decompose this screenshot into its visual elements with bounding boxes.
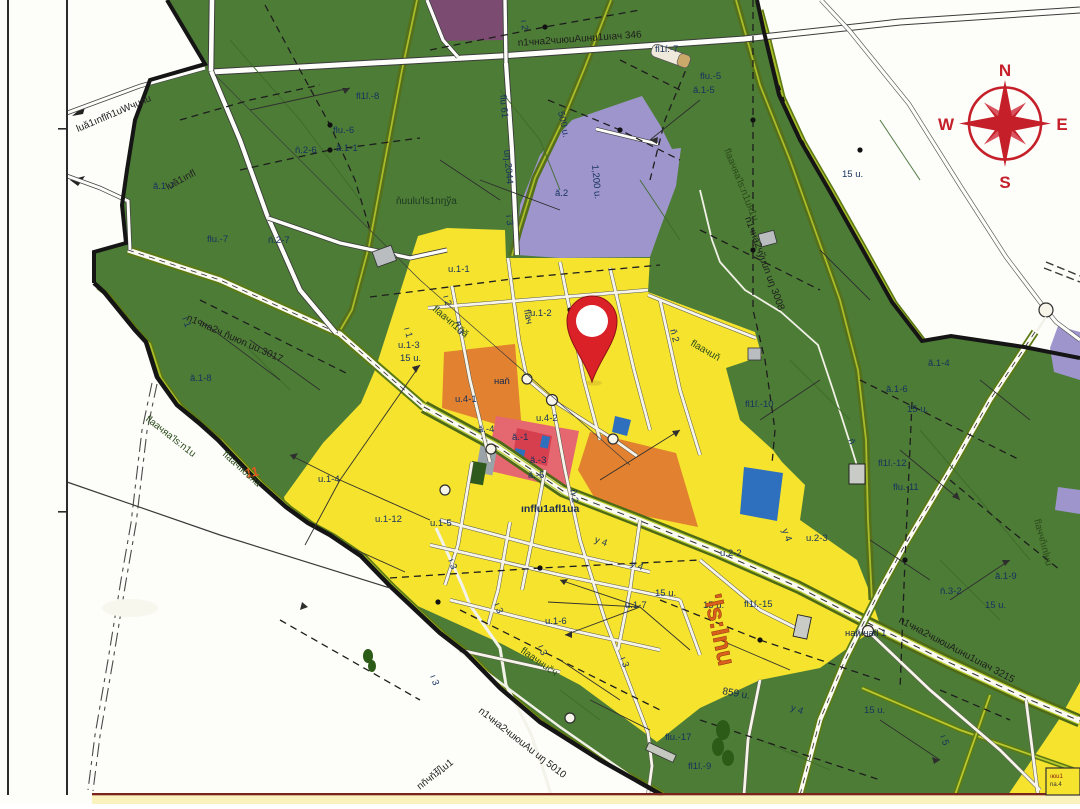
svg-text:S: S [999,173,1010,192]
svg-text:E: E [1056,115,1067,134]
svg-text:ă.-3: ă.-3 [530,455,546,466]
svg-text:ﬂu.-17: ﬂu.-17 [665,732,691,743]
svg-text:ﬂu 61: ﬂu 61 [497,94,510,118]
svg-text:u.1-6: u.1-6 [545,616,567,627]
svg-text:ﬂu.-6: ﬂu.-6 [333,125,354,136]
svg-text:ﬂ1ſ.-8: ﬂ1ſ.-8 [356,91,379,102]
svg-text:15 u.: 15 u. [842,169,863,180]
svg-text:наň: наň [494,376,510,387]
svg-text:15 u.: 15 u. [864,705,885,716]
svg-text:ﬂ1ſ.-15: ﬂ1ſ.-15 [744,599,773,610]
svg-text:u.2-3: u.2-3 [806,533,828,544]
svg-text:15 u.: 15 u. [985,600,1006,611]
svg-text:u.4-2: u.4-2 [536,413,558,424]
svg-text:ă.1-9: ă.1-9 [995,571,1017,582]
svg-text:ﬂ1ſ.-9: ﬂ1ſ.-9 [688,761,711,772]
svg-text:ă.1-8: ă.1-8 [190,373,212,384]
svg-text:na.4: na.4 [1050,782,1062,788]
svg-text:u.1-1: u.1-1 [448,264,470,275]
svg-text:u.4-1: u.4-1 [455,394,477,405]
svg-text:ň.2-6: ň.2-6 [295,145,317,156]
svg-text:ă.1-4: ă.1-4 [928,358,950,369]
svg-text:ﬂu.-5: ﬂu.-5 [700,71,721,82]
svg-text:N: N [999,61,1011,80]
svg-text:u.1-4: u.1-4 [318,474,340,485]
svg-text:W: W [938,115,955,134]
svg-text:u.1-12: u.1-12 [375,514,402,525]
svg-text:ﬂ1ſ.-12: ﬂ1ſ.-12 [878,458,907,469]
svg-text:ă.1-6: ă.1-6 [886,384,908,395]
svg-text:ň.2-7: ň.2-7 [268,235,290,246]
svg-text:ă.2: ă.2 [555,188,568,199]
svg-text:u.2-2: u.2-2 [720,548,742,559]
svg-text:15 u.: 15 u. [907,404,928,415]
svg-text:ă.-4: ă.-4 [478,424,494,435]
svg-text:ınﬂu1aﬂ1ua: ınﬂu1aﬂ1ua [521,503,580,515]
svg-text:ﬂ1ſ.-7: ﬂ1ſ.-7 [655,44,678,55]
svg-text:ă.1-1: ă.1-1 [336,143,358,154]
svg-text:ň.3-2: ň.3-2 [940,586,962,597]
svg-text:u.1-3: u.1-3 [398,340,420,351]
svg-text:ňuulu'ls1nŋўa: ňuulu'ls1nŋўa [396,195,457,207]
svg-text:ıюu1: ıюu1 [1050,774,1064,780]
svg-text:наňıчаﬂ 1: наňıчаﬂ 1 [845,628,886,639]
svg-text:15 u.: 15 u. [400,353,421,364]
svg-text:ﬂ1ſ.-10: ﬂ1ſ.-10 [745,399,774,410]
svg-text:ı 3: ı 3 [503,214,515,225]
svg-text:ﬂu.-11: ﬂu.-11 [893,482,919,493]
svg-text:ﬂu.-7: ﬂu.-7 [207,234,228,245]
svg-text:ă.1-5: ă.1-5 [693,85,715,96]
svg-text:ı 2: ı 2 [518,19,530,30]
svg-text:ă.-1: ă.-1 [512,432,528,443]
svg-text:u.1-5: u.1-5 [430,518,452,529]
svg-text:ă.-5: ă.-5 [528,470,544,481]
svg-text:u.1-7: u.1-7 [625,600,647,611]
svg-text:15 u.: 15 u. [655,588,676,599]
svg-text:ň 2: ň 2 [567,489,580,504]
